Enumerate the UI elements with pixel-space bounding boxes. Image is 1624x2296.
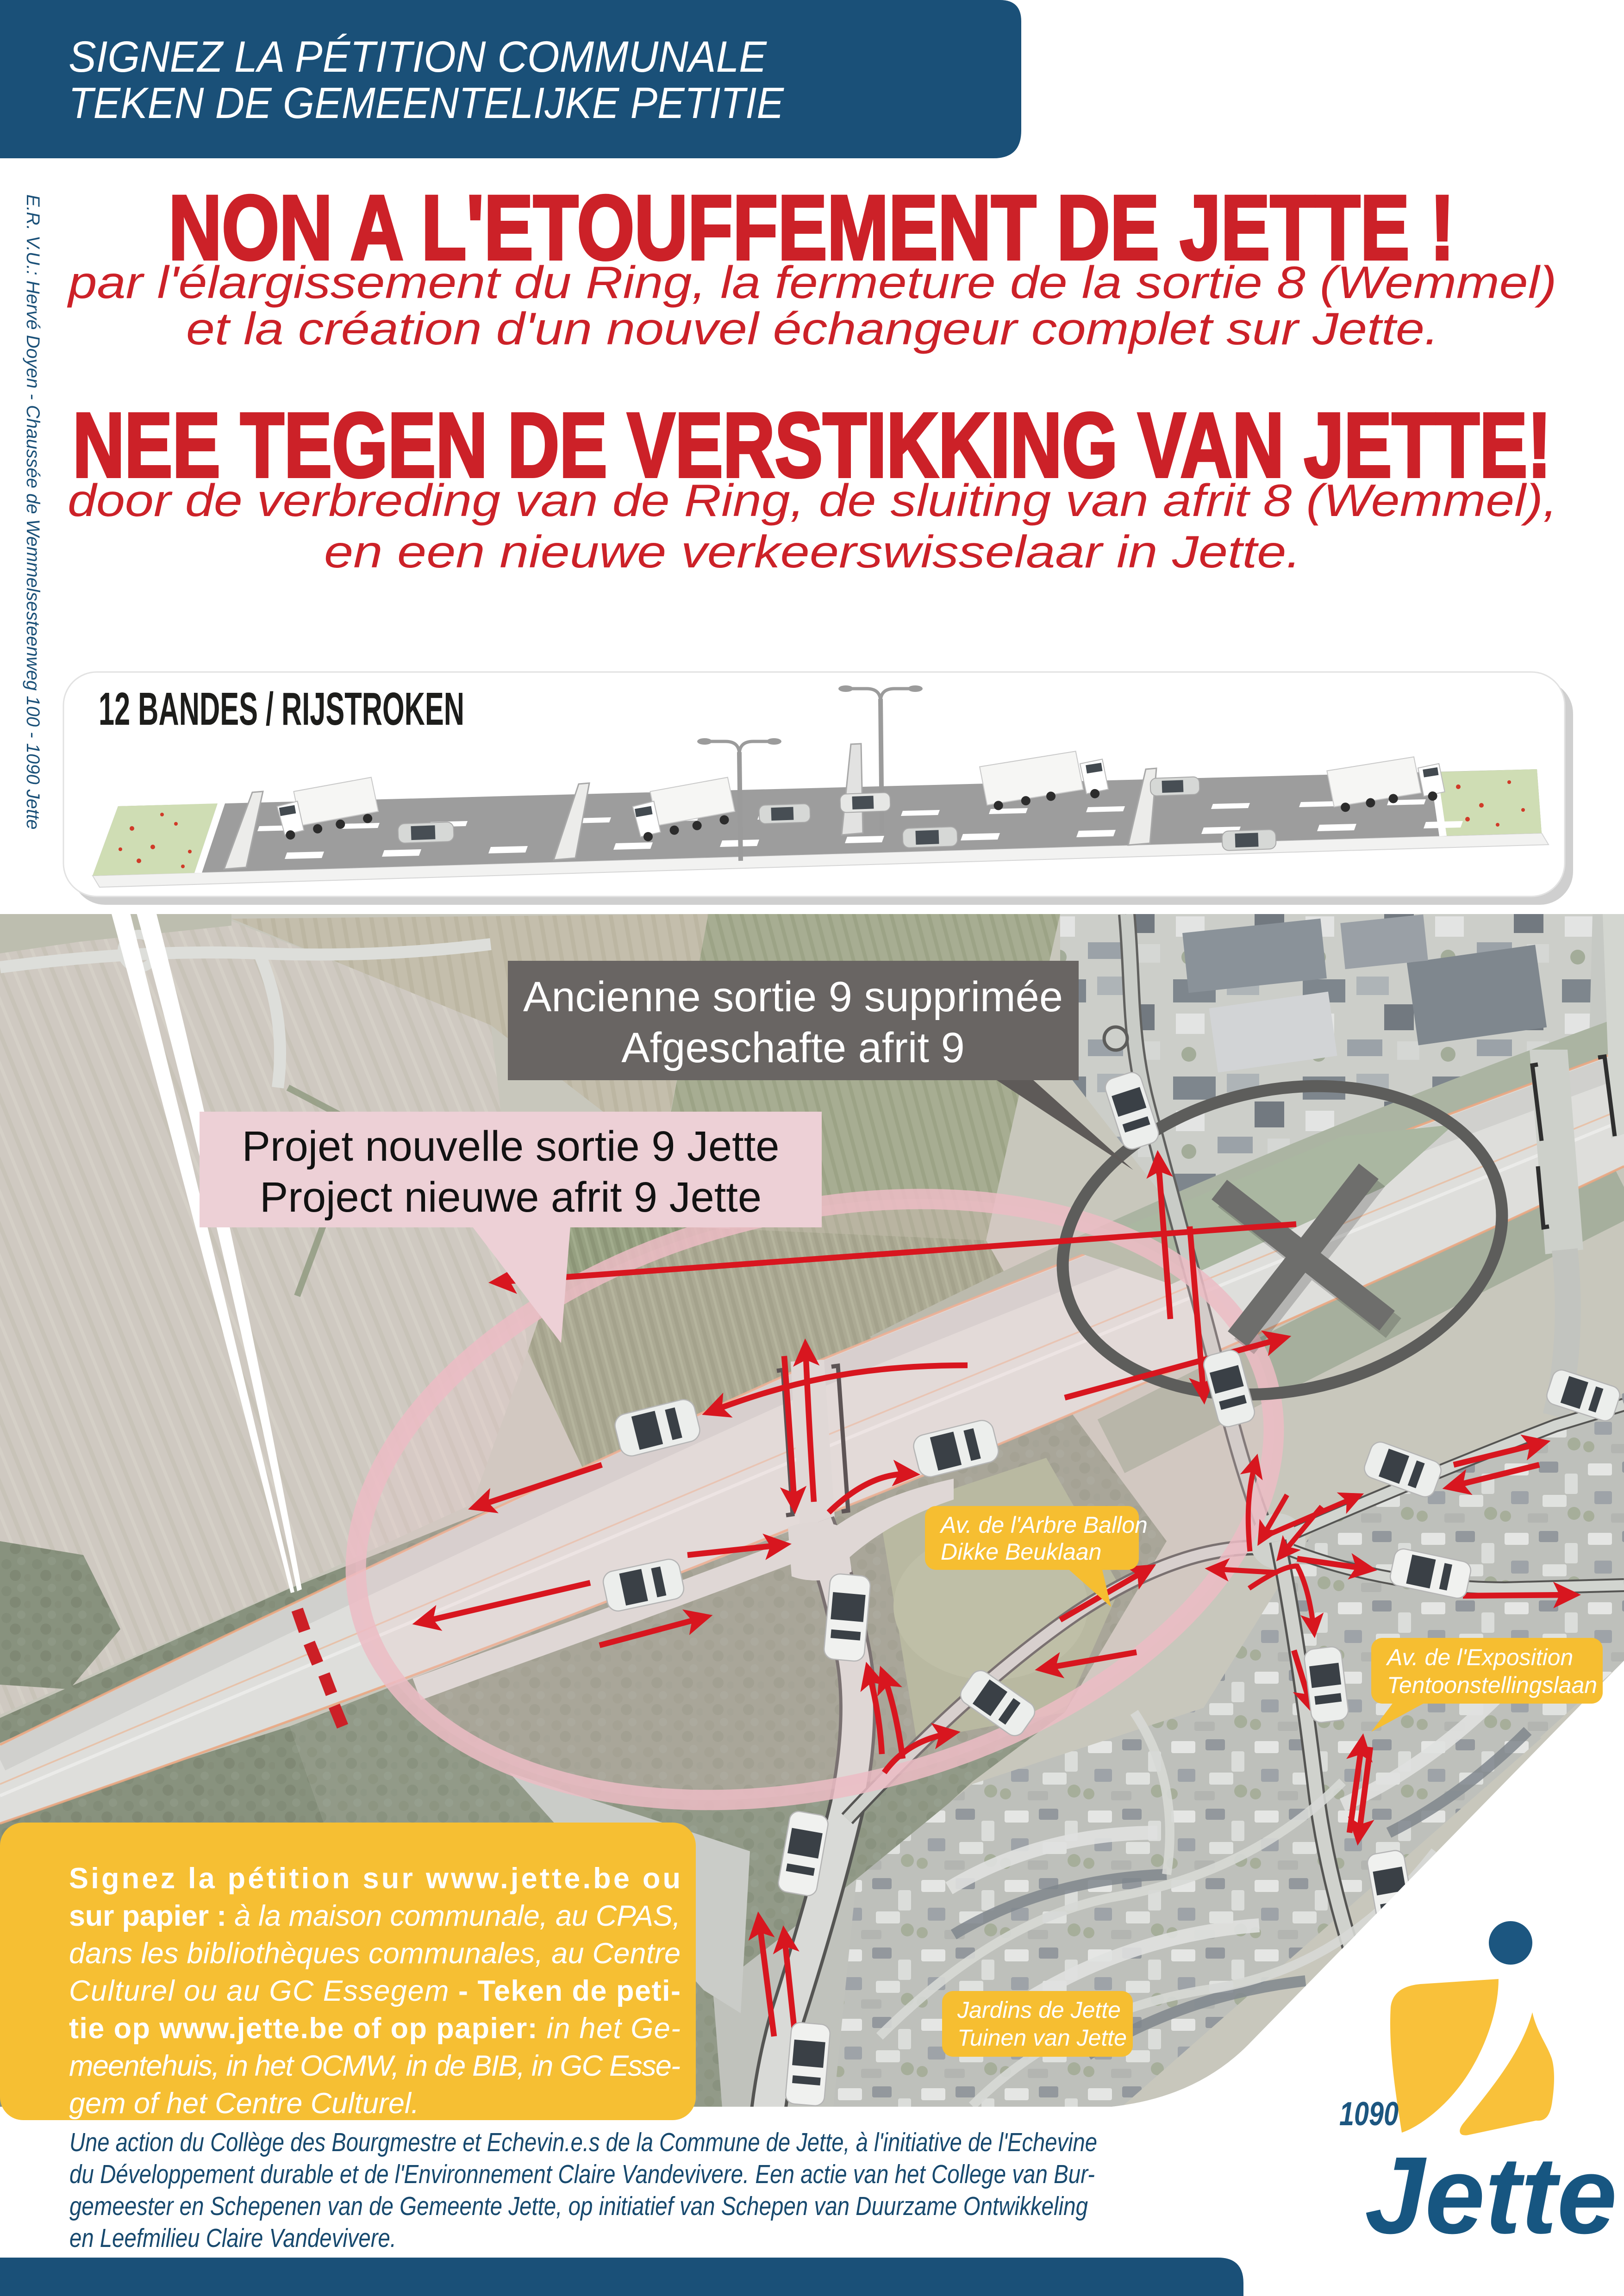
svg-text:dans les bibliothèques communa: dans les bibliothèques communales, au Ce…: [69, 1937, 681, 1970]
svg-text:en Leefmilieu Claire Vandevive: en Leefmilieu Claire Vandevivere.: [69, 2223, 396, 2253]
svg-text:Projet nouvelle sortie 9 Jette: Projet nouvelle sortie 9 Jette: [242, 1123, 780, 1170]
svg-text:1090: 1090: [1339, 2096, 1399, 2133]
svg-text:Tuinen van Jette: Tuinen van Jette: [957, 2025, 1127, 2051]
svg-text:Signez la pétition sur www.jet: Signez la pétition sur www.jette.be ou: [69, 1862, 681, 1895]
svg-text:SIGNEZ LA PÉTITION COMMUNALE: SIGNEZ LA PÉTITION COMMUNALE: [69, 32, 768, 81]
svg-text:12 BANDES / RIJSTROKEN: 12 BANDES / RIJSTROKEN: [99, 683, 464, 735]
svg-text:Afgeschafte afrit 9: Afgeschafte afrit 9: [621, 1024, 965, 1071]
svg-text:sur papier : à la maison commu: sur papier : à la maison communale, au C…: [69, 1900, 681, 1932]
svg-text:Project nieuwe afrit 9 Jette: Project nieuwe afrit 9 Jette: [260, 1174, 762, 1221]
svg-text:Une action du Collège des Bour: Une action du Collège des Bourgmestre et…: [69, 2128, 1097, 2157]
svg-text:meentehuis, in het OCMW, in de: meentehuis, in het OCMW, in de BIB, in G…: [69, 2050, 681, 2082]
svg-text:gemeester en Schepenen van de: gemeester en Schepenen van de Gemeente J…: [69, 2191, 1088, 2221]
svg-text:en een nieuwe verkeerswisselaa: en een nieuwe verkeerswisselaar in Jette…: [324, 526, 1301, 577]
svg-text:par l'élargissement du Ring, l: par l'élargissement du Ring, la fermetur…: [67, 257, 1556, 308]
svg-text:Jardins de Jette: Jardins de Jette: [957, 1997, 1121, 2023]
svg-text:gem of het Centre Culturel.: gem of het Centre Culturel.: [69, 2087, 419, 2120]
svg-text:Av. de l'Exposition: Av. de l'Exposition: [1386, 1644, 1573, 1670]
svg-text:du Développement durable et de: du Développement durable et de l'Environ…: [69, 2159, 1095, 2189]
svg-text:Culturel ou au GC Essegem - Te: Culturel ou au GC Essegem - Teken de pet…: [69, 1975, 681, 2007]
svg-text:et la création d'un nouvel éch: et la création d'un nouvel échangeur com…: [186, 303, 1439, 354]
svg-text:Ancienne sortie 9 supprimée: Ancienne sortie 9 supprimée: [523, 973, 1063, 1020]
svg-text:tie op www.jette.be of op papi: tie op www.jette.be of op papier: in het…: [69, 2012, 681, 2045]
svg-text:Av. de l'Arbre Ballon: Av. de l'Arbre Ballon: [939, 1512, 1148, 1538]
svg-text:Tentoonstellingslaan: Tentoonstellingslaan: [1387, 1672, 1597, 1698]
svg-text:E.R. V.U.: Hervé Doyen - Chaus: E.R. V.U.: Hervé Doyen - Chaussée de Wem…: [23, 194, 43, 830]
svg-text:TEKEN DE GEMEENTELIJKE PETITIE: TEKEN DE GEMEENTELIJKE PETITIE: [69, 79, 785, 128]
svg-text:Jette: Jette: [1365, 2134, 1617, 2257]
svg-text:Dikke Beuklaan: Dikke Beuklaan: [941, 1539, 1101, 1565]
svg-text:door de verbreding van de Ring: door de verbreding van de Ring, de sluit…: [68, 475, 1557, 526]
